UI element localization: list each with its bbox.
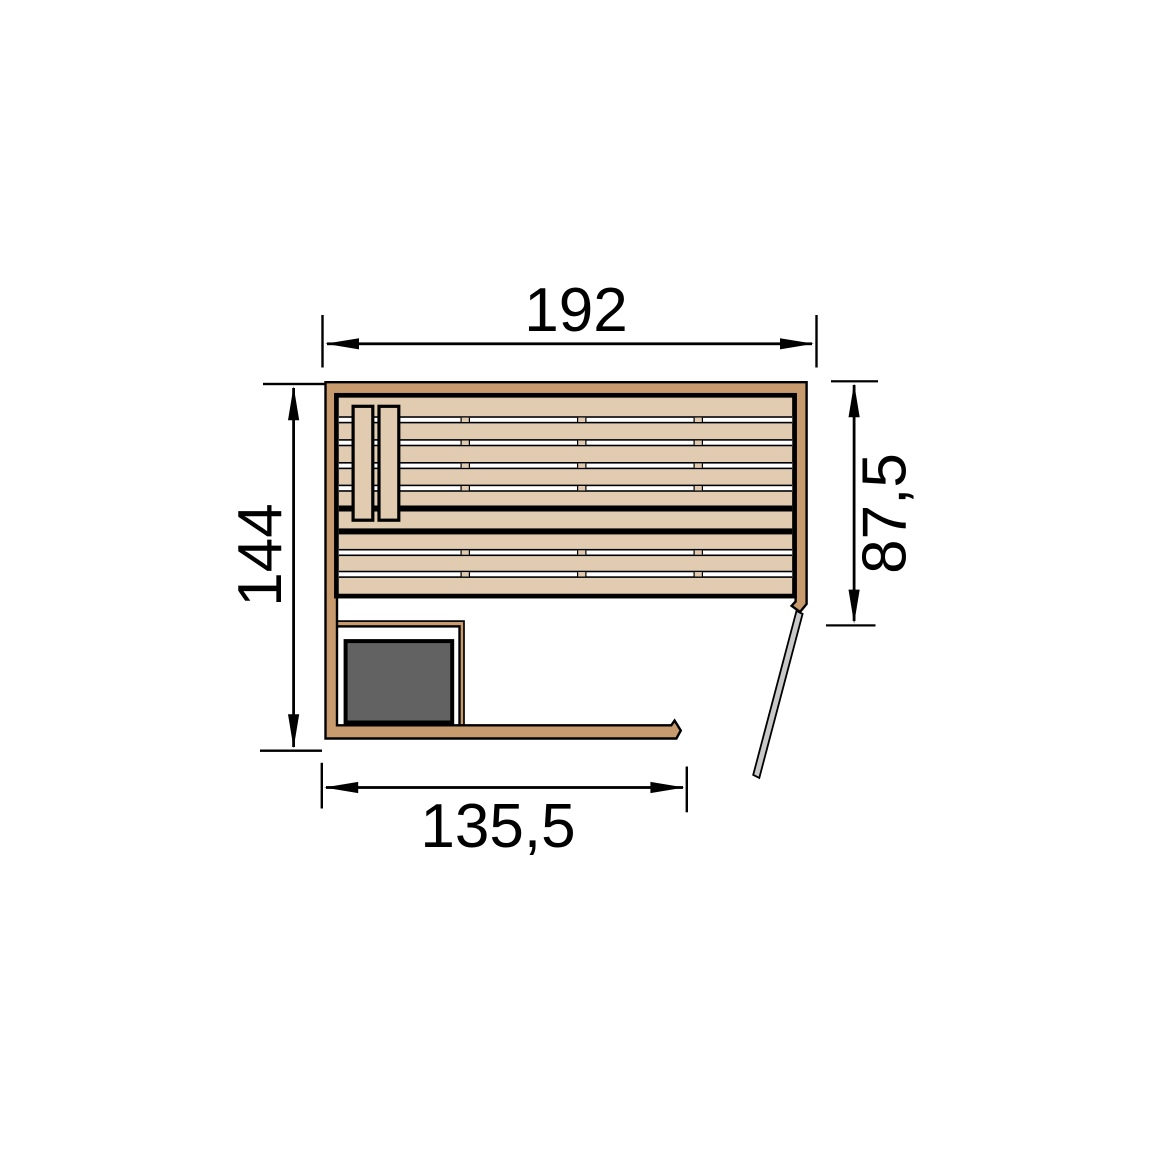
- svg-text:192: 192: [524, 276, 627, 345]
- svg-text:135,5: 135,5: [420, 792, 575, 861]
- svg-text:144: 144: [226, 503, 295, 606]
- svg-text:87,5: 87,5: [851, 453, 920, 574]
